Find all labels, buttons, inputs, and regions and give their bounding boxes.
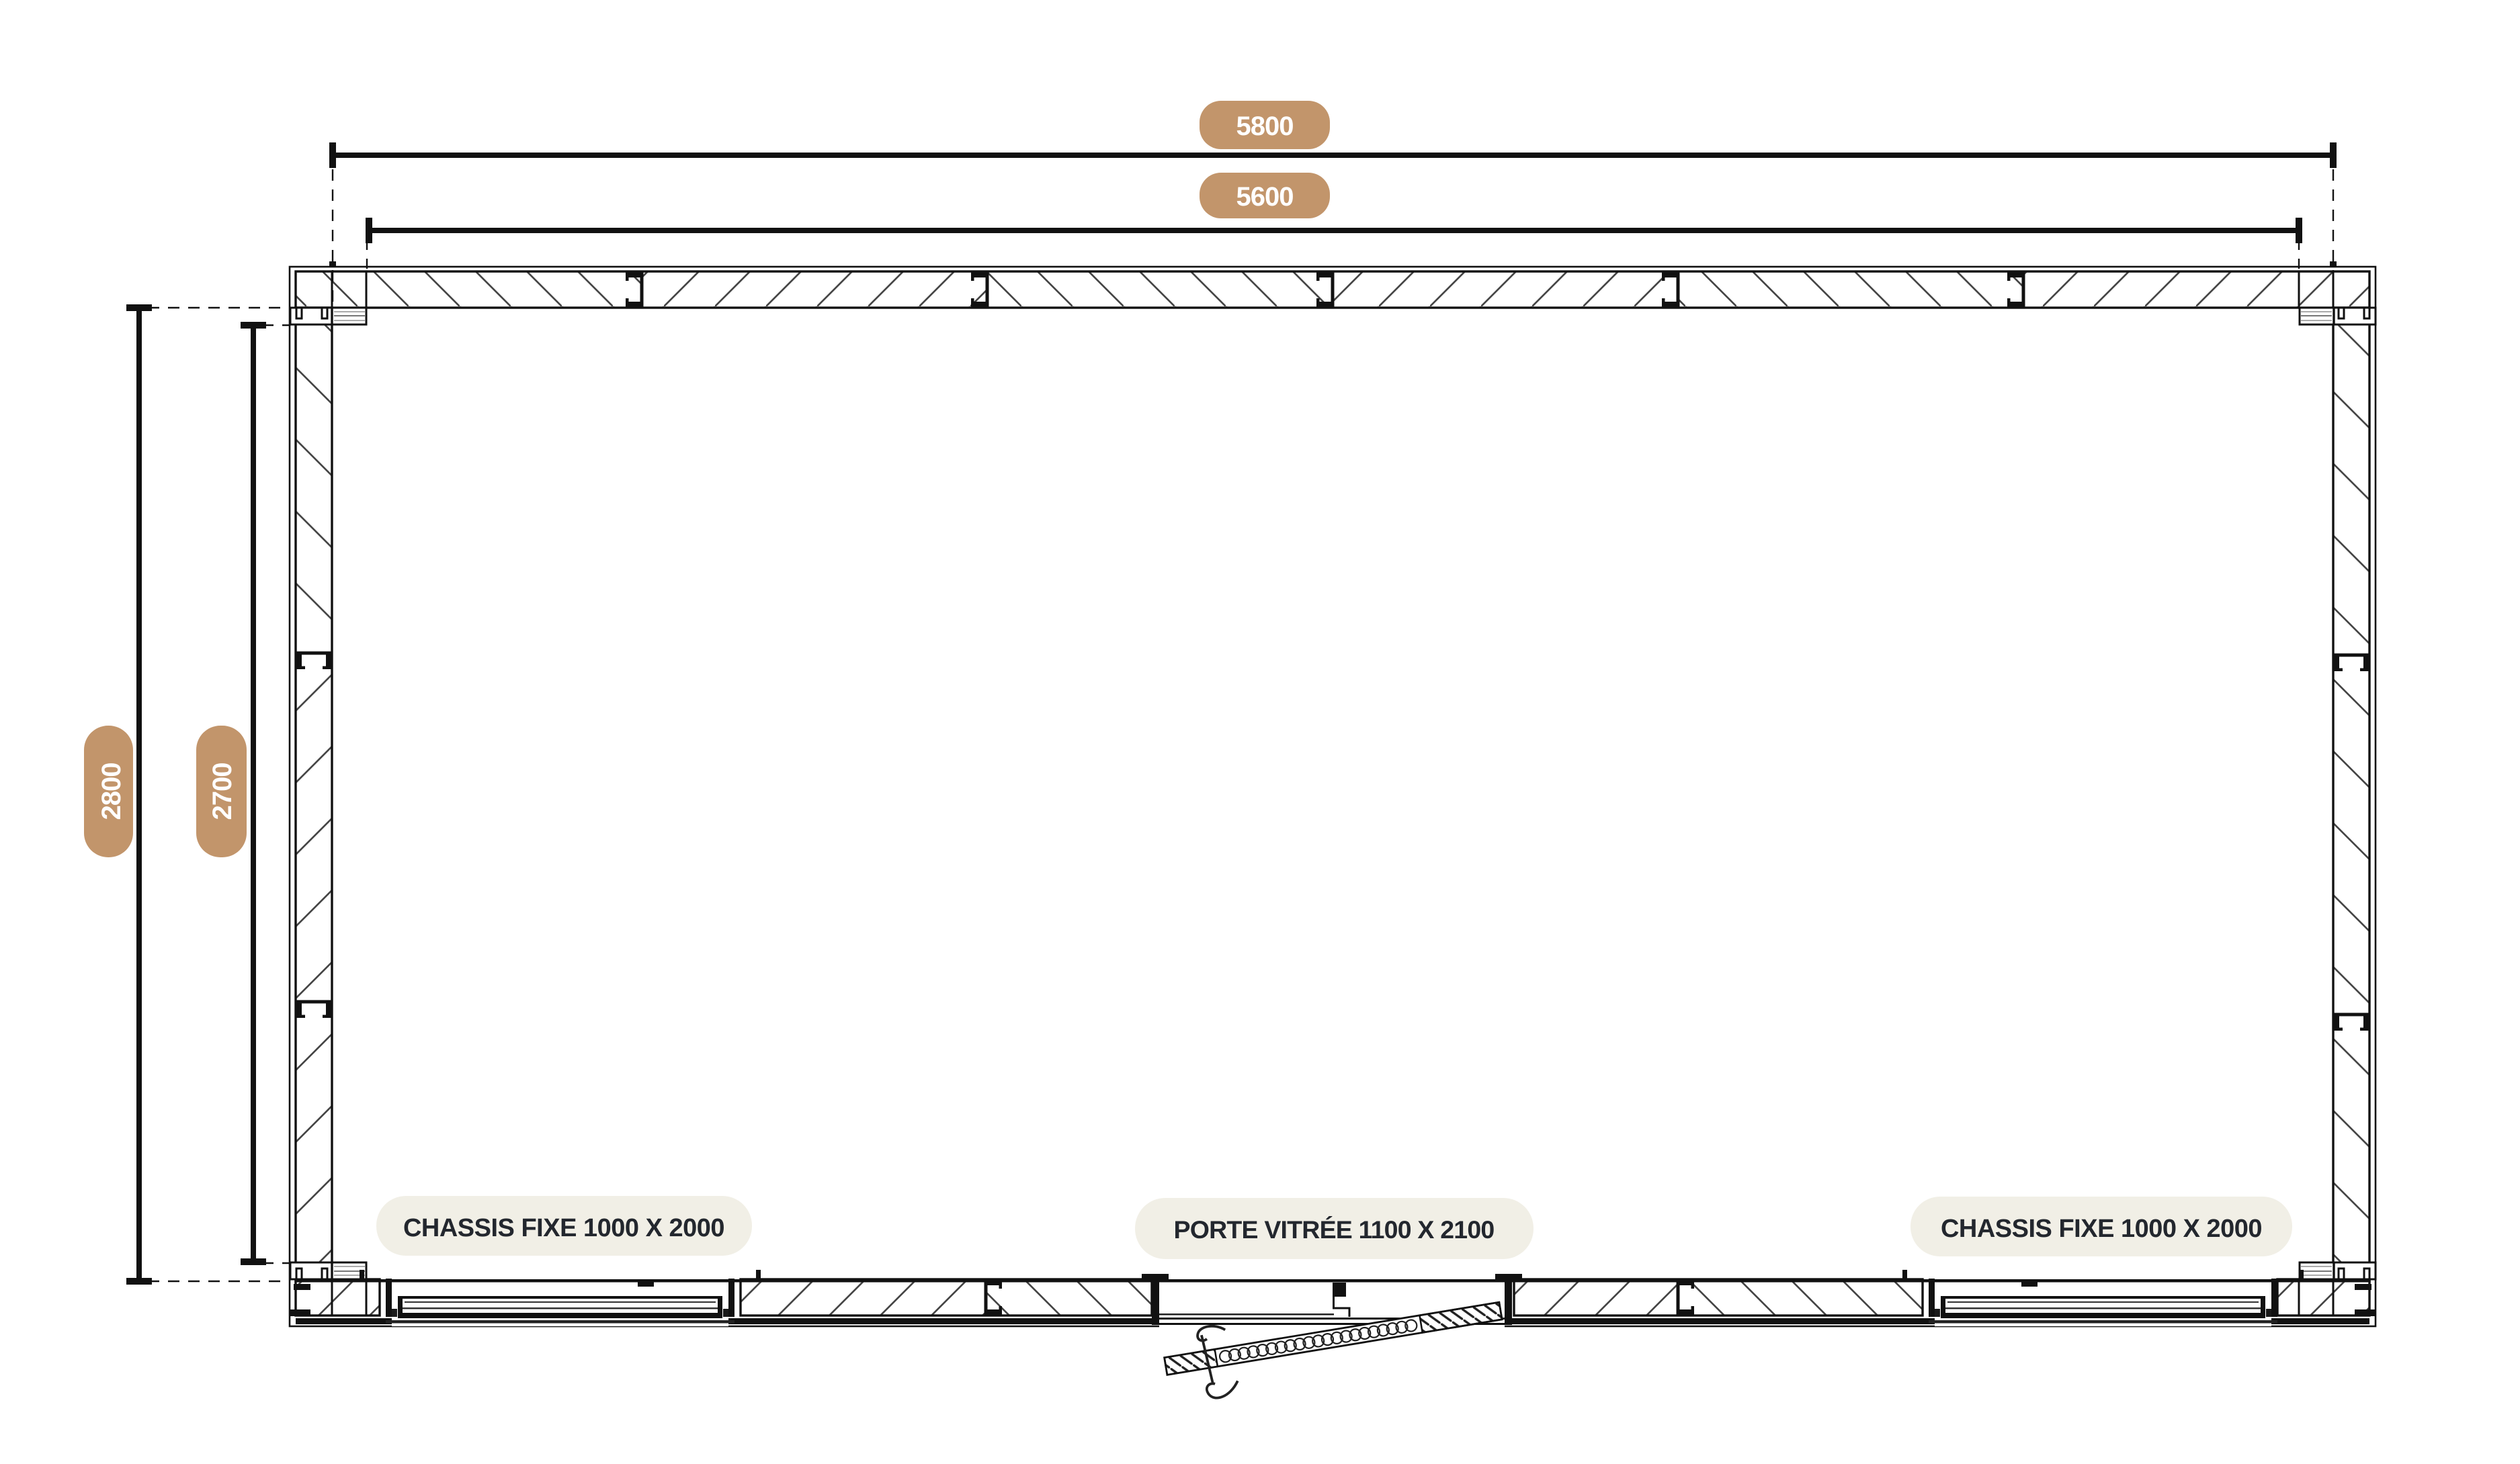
svg-text:CHASSIS FIXE 1000 X 2000: CHASSIS FIXE 1000 X 2000 [403,1214,724,1242]
svg-text:PORTE VITRÉE 1100 X 2100: PORTE VITRÉE 1100 X 2100 [1174,1215,1495,1244]
svg-text:5800: 5800 [1236,112,1294,141]
svg-text:5600: 5600 [1236,182,1294,212]
svg-text:2800: 2800 [97,763,126,820]
svg-text:CHASSIS FIXE 1000 X 2000: CHASSIS FIXE 1000 X 2000 [1941,1215,2262,1243]
svg-text:2700: 2700 [208,763,237,820]
